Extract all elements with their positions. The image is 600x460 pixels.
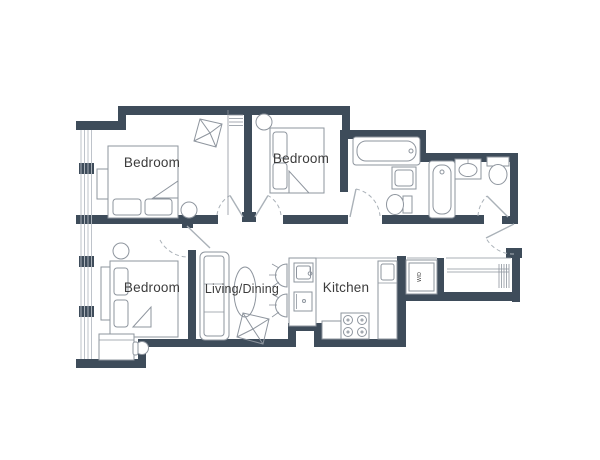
closet-shelves-icon — [229, 115, 243, 126]
bedroom-1-door — [217, 196, 243, 218]
bedroom-2-door — [255, 196, 281, 218]
dresser-icon — [97, 169, 108, 199]
kitchen-island — [289, 258, 316, 326]
pillow-icon — [273, 163, 287, 189]
floorplan-drawing: Bedroom Bedroom Bedroom Living/Dining Ki… — [0, 0, 600, 460]
washer-dryer-label: W/D — [417, 272, 423, 282]
stove-icon — [341, 313, 369, 339]
bedroom-1-label: Bedroom — [124, 155, 180, 170]
nightstand-icon — [181, 202, 197, 218]
toilet-icon — [387, 195, 413, 215]
desk-icon — [99, 334, 134, 360]
pillow-icon — [114, 300, 128, 327]
bathroom-2-fixtures — [429, 157, 509, 218]
bathroom-2-door — [478, 196, 508, 217]
pillow-icon — [113, 199, 141, 215]
desk-chair-icon — [133, 342, 149, 356]
bathtub-icon — [353, 137, 420, 165]
toilet-icon — [487, 157, 509, 185]
sofa-icon — [200, 252, 229, 340]
bathroom-1-fixtures — [353, 137, 420, 215]
living-dining-furniture — [200, 252, 287, 344]
sink-icon — [455, 159, 481, 179]
sink-icon — [392, 167, 416, 189]
armchair-icon — [194, 119, 222, 147]
bedroom-3-label: Bedroom — [124, 280, 180, 295]
living-dining-label: Living/Dining — [205, 282, 279, 296]
counter-right — [378, 261, 397, 339]
bathtub-icon — [429, 161, 455, 218]
pillow-icon — [145, 199, 172, 215]
bathroom-1-door — [350, 189, 380, 217]
dresser-icon — [101, 267, 110, 320]
kitchen-label: Kitchen — [323, 280, 369, 295]
counter-strip — [322, 321, 341, 339]
bedroom-2-label: Bedroom — [273, 151, 329, 166]
floorplan-canvas: Bedroom Bedroom Bedroom Living/Dining Ki… — [0, 0, 600, 460]
stool-icon — [269, 294, 287, 317]
closet-rod-icon — [447, 264, 509, 288]
nightstand-icon — [113, 243, 129, 259]
